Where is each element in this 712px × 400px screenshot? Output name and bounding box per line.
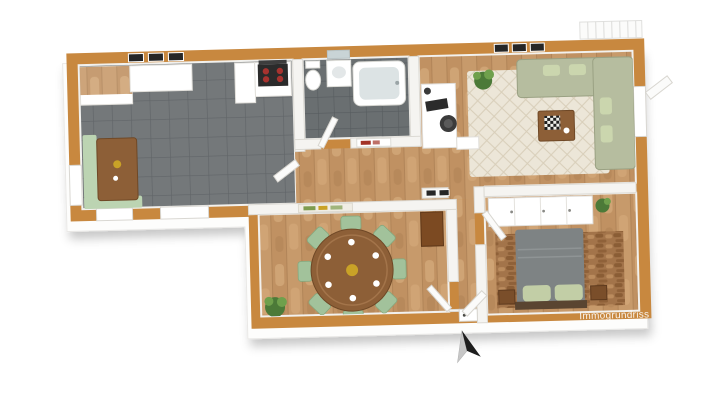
dining-cabinet bbox=[421, 212, 444, 247]
wall-bath-living bbox=[409, 56, 421, 146]
balcony-door-leaf bbox=[645, 76, 673, 100]
counter-top-wall bbox=[130, 64, 193, 92]
wall-frame bbox=[148, 53, 163, 61]
corridor-floor bbox=[456, 199, 477, 311]
wall-kitchen-bath bbox=[293, 59, 305, 151]
sofa-pillow bbox=[543, 65, 560, 76]
nightstand-right bbox=[591, 285, 607, 299]
balcony-door-opening bbox=[633, 86, 646, 136]
counter-left-woodtop bbox=[80, 66, 133, 95]
art-gold bbox=[318, 206, 327, 210]
small-window bbox=[494, 44, 508, 52]
wall-dining-corridor-lower bbox=[449, 309, 459, 311]
floorplan-svg: Immogrundriss bbox=[0, 0, 712, 400]
wall-bath-south-left bbox=[295, 139, 321, 150]
dining-chair bbox=[341, 216, 361, 231]
chess-board bbox=[544, 116, 560, 130]
sofa-right-arm bbox=[593, 57, 636, 170]
bathtub-inner bbox=[359, 67, 400, 100]
living-wall-windows bbox=[494, 43, 544, 52]
wardrobe-group bbox=[488, 196, 593, 227]
wall-corridor-east-upper bbox=[474, 187, 485, 213]
window-kitchen-south-2 bbox=[160, 206, 208, 219]
bed-pillow bbox=[523, 285, 551, 302]
apartment: Immogrundriss bbox=[62, 20, 679, 344]
desk-return bbox=[457, 137, 479, 150]
window-kitchen-south-1 bbox=[96, 208, 132, 221]
kitchen-table bbox=[97, 138, 139, 201]
watermark-text: Immogrundriss bbox=[579, 309, 649, 322]
art-green bbox=[303, 206, 315, 210]
bed-group bbox=[513, 228, 587, 310]
floorplan-image: Immogrundriss bbox=[0, 0, 712, 400]
balcony-railing bbox=[580, 20, 642, 39]
wall-frame bbox=[168, 52, 183, 60]
bathroom-mirror bbox=[327, 50, 349, 59]
hallway-floor bbox=[295, 145, 484, 204]
coffee-table-group bbox=[538, 110, 575, 141]
hall-art-red bbox=[361, 141, 371, 145]
railing-bar bbox=[580, 20, 642, 39]
sofa-pillow bbox=[600, 97, 612, 114]
art-green2 bbox=[330, 205, 342, 209]
hall-frame bbox=[426, 190, 436, 196]
kitchen-wall-frames bbox=[128, 52, 183, 61]
wall-frame bbox=[128, 54, 143, 62]
cooktop bbox=[258, 64, 289, 87]
window-left-wall bbox=[69, 165, 82, 205]
dining-chair bbox=[392, 259, 407, 279]
nightstand-left bbox=[499, 290, 515, 304]
small-window bbox=[512, 43, 526, 51]
tall-cabinet bbox=[235, 63, 256, 104]
bed-pillow bbox=[555, 284, 583, 301]
dining-wall-art bbox=[298, 203, 352, 212]
hall-art-red2 bbox=[373, 140, 380, 144]
small-window bbox=[530, 43, 544, 51]
hall-frame bbox=[439, 190, 449, 196]
sofa-pillow bbox=[600, 125, 612, 142]
toilet-bowl bbox=[305, 70, 321, 90]
wall-dining-corridor-upper bbox=[447, 209, 459, 281]
dining-chair bbox=[298, 261, 313, 281]
sofa-pillow bbox=[569, 64, 586, 75]
toilet-tank bbox=[306, 61, 320, 68]
